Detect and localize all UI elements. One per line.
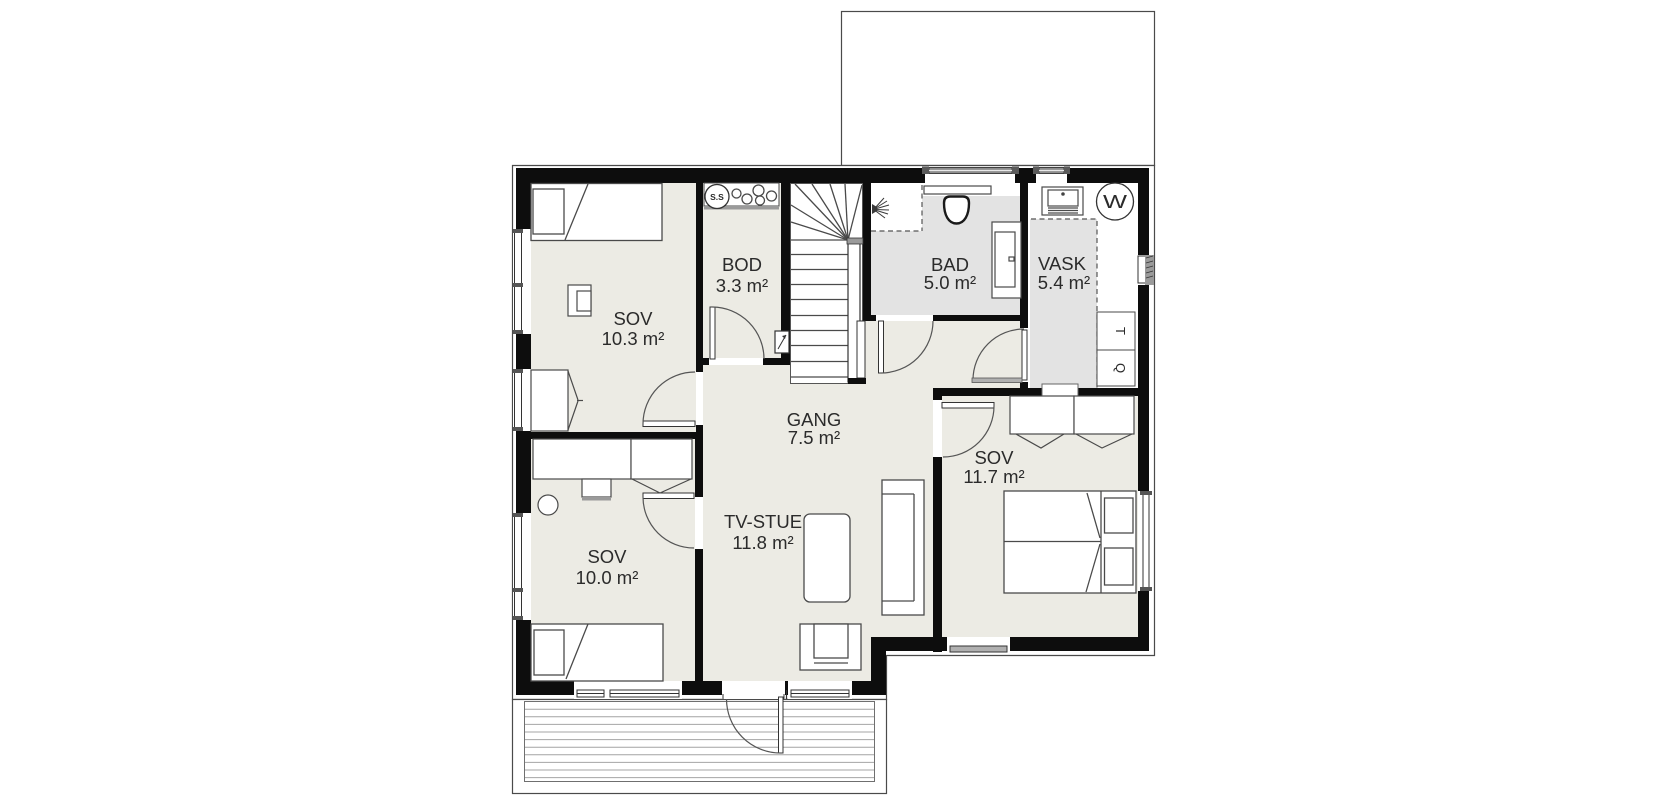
svg-text:10.3 m²: 10.3 m² — [602, 328, 665, 349]
svg-text:7.5 m²: 7.5 m² — [788, 427, 840, 448]
svg-text:W: W — [1103, 192, 1127, 212]
svg-text:3.3 m²: 3.3 m² — [716, 275, 768, 296]
svg-text:11.8 m²: 11.8 m² — [732, 532, 793, 553]
svg-text:BOD: BOD — [722, 254, 762, 275]
svg-text:VASK: VASK — [1038, 253, 1087, 274]
svg-text:TV-STUE: TV-STUE — [724, 511, 802, 532]
svg-text:Q: Q — [1113, 363, 1128, 373]
svg-text:11.7 m²: 11.7 m² — [963, 466, 1024, 487]
svg-text:S.S: S.S — [710, 192, 724, 202]
svg-text:SOV: SOV — [613, 308, 653, 329]
svg-text:5.0 m²: 5.0 m² — [924, 272, 976, 293]
svg-text:SOV: SOV — [974, 447, 1014, 468]
svg-text:T: T — [1113, 327, 1128, 335]
svg-text:5.4 m²: 5.4 m² — [1038, 272, 1090, 293]
svg-text:10.0 m²: 10.0 m² — [576, 567, 639, 588]
svg-text:SOV: SOV — [587, 546, 627, 567]
